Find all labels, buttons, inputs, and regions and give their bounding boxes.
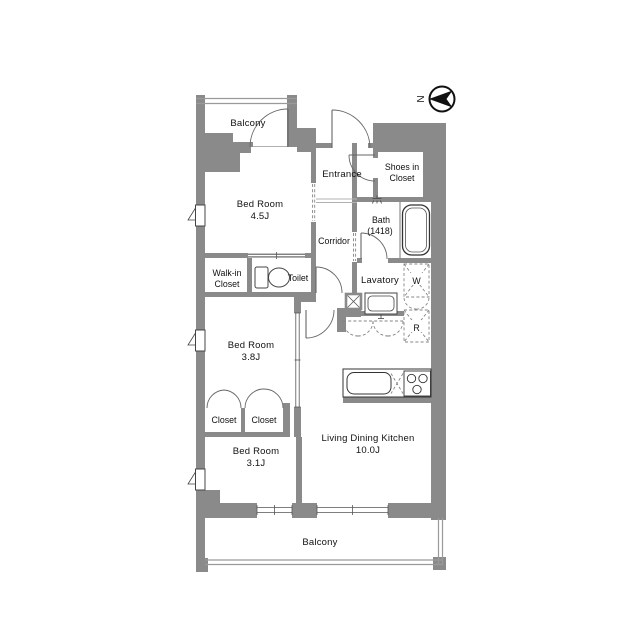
fridge-label: R — [413, 323, 419, 333]
bedroom-45-size: 4.5J — [251, 211, 270, 222]
front-door-arc — [332, 110, 370, 148]
north-compass: N — [416, 87, 455, 112]
ldk-name: Living Dining Kitchen — [322, 433, 415, 444]
lavatory-label: Lavatory — [361, 275, 399, 286]
toilet-fixture — [255, 267, 290, 288]
kitchen-sink — [347, 373, 391, 395]
balcony-bottom-label: Balcony — [302, 537, 337, 548]
north-label: N — [416, 95, 427, 102]
closet-left-label: Closet — [212, 415, 237, 425]
ldk-door-arc — [306, 310, 334, 338]
ldk-size: 10.0J — [356, 445, 380, 456]
shoes-closet-line1: Shoes in — [385, 162, 419, 172]
toilet-door-arc — [316, 267, 342, 293]
kitchen-cabinet-dashed — [343, 321, 403, 336]
bedroom-31-name: Bed Room — [233, 446, 279, 457]
closet-bifold-doors — [207, 389, 283, 408]
room-labels: Balcony Bed Room 4.5J Entrance Shoes in … — [212, 118, 422, 548]
window — [188, 330, 205, 351]
corridor-label: Corridor — [318, 236, 350, 246]
bath-size: (1418) — [367, 226, 392, 236]
toilet-label: Toilet — [288, 273, 309, 283]
washer-label: W — [412, 276, 421, 286]
floor-plan: N Balcony Bed Room 4.5J Entrance Shoes i… — [0, 0, 640, 640]
bedroom-38-name: Bed Room — [228, 340, 274, 351]
washer-space — [404, 264, 429, 309]
shoes-closet-line2: Closet — [390, 173, 415, 183]
bedroom-31-size: 3.1J — [247, 458, 266, 469]
balcony-windows — [257, 505, 388, 515]
walkin-closet-line1: Walk-in — [213, 268, 242, 278]
stove — [404, 371, 431, 396]
bedroom-45-name: Bed Room — [237, 199, 283, 210]
shaft-box — [346, 294, 361, 309]
floor-plan-page: N Balcony Bed Room 4.5J Entrance Shoes i… — [0, 0, 640, 640]
kitchen-counter — [343, 369, 431, 397]
bathtub — [400, 202, 430, 258]
walkin-closet-line2: Closet — [215, 279, 240, 289]
entrance-label: Entrance — [322, 169, 362, 180]
balcony-top-label: Balcony — [230, 118, 265, 129]
bath-name: Bath — [372, 215, 390, 225]
bedroom-38-size: 3.8J — [242, 352, 261, 363]
closet-right-label: Closet — [252, 415, 277, 425]
bath-door-arc — [361, 233, 387, 259]
window — [188, 205, 205, 226]
window — [188, 469, 205, 490]
